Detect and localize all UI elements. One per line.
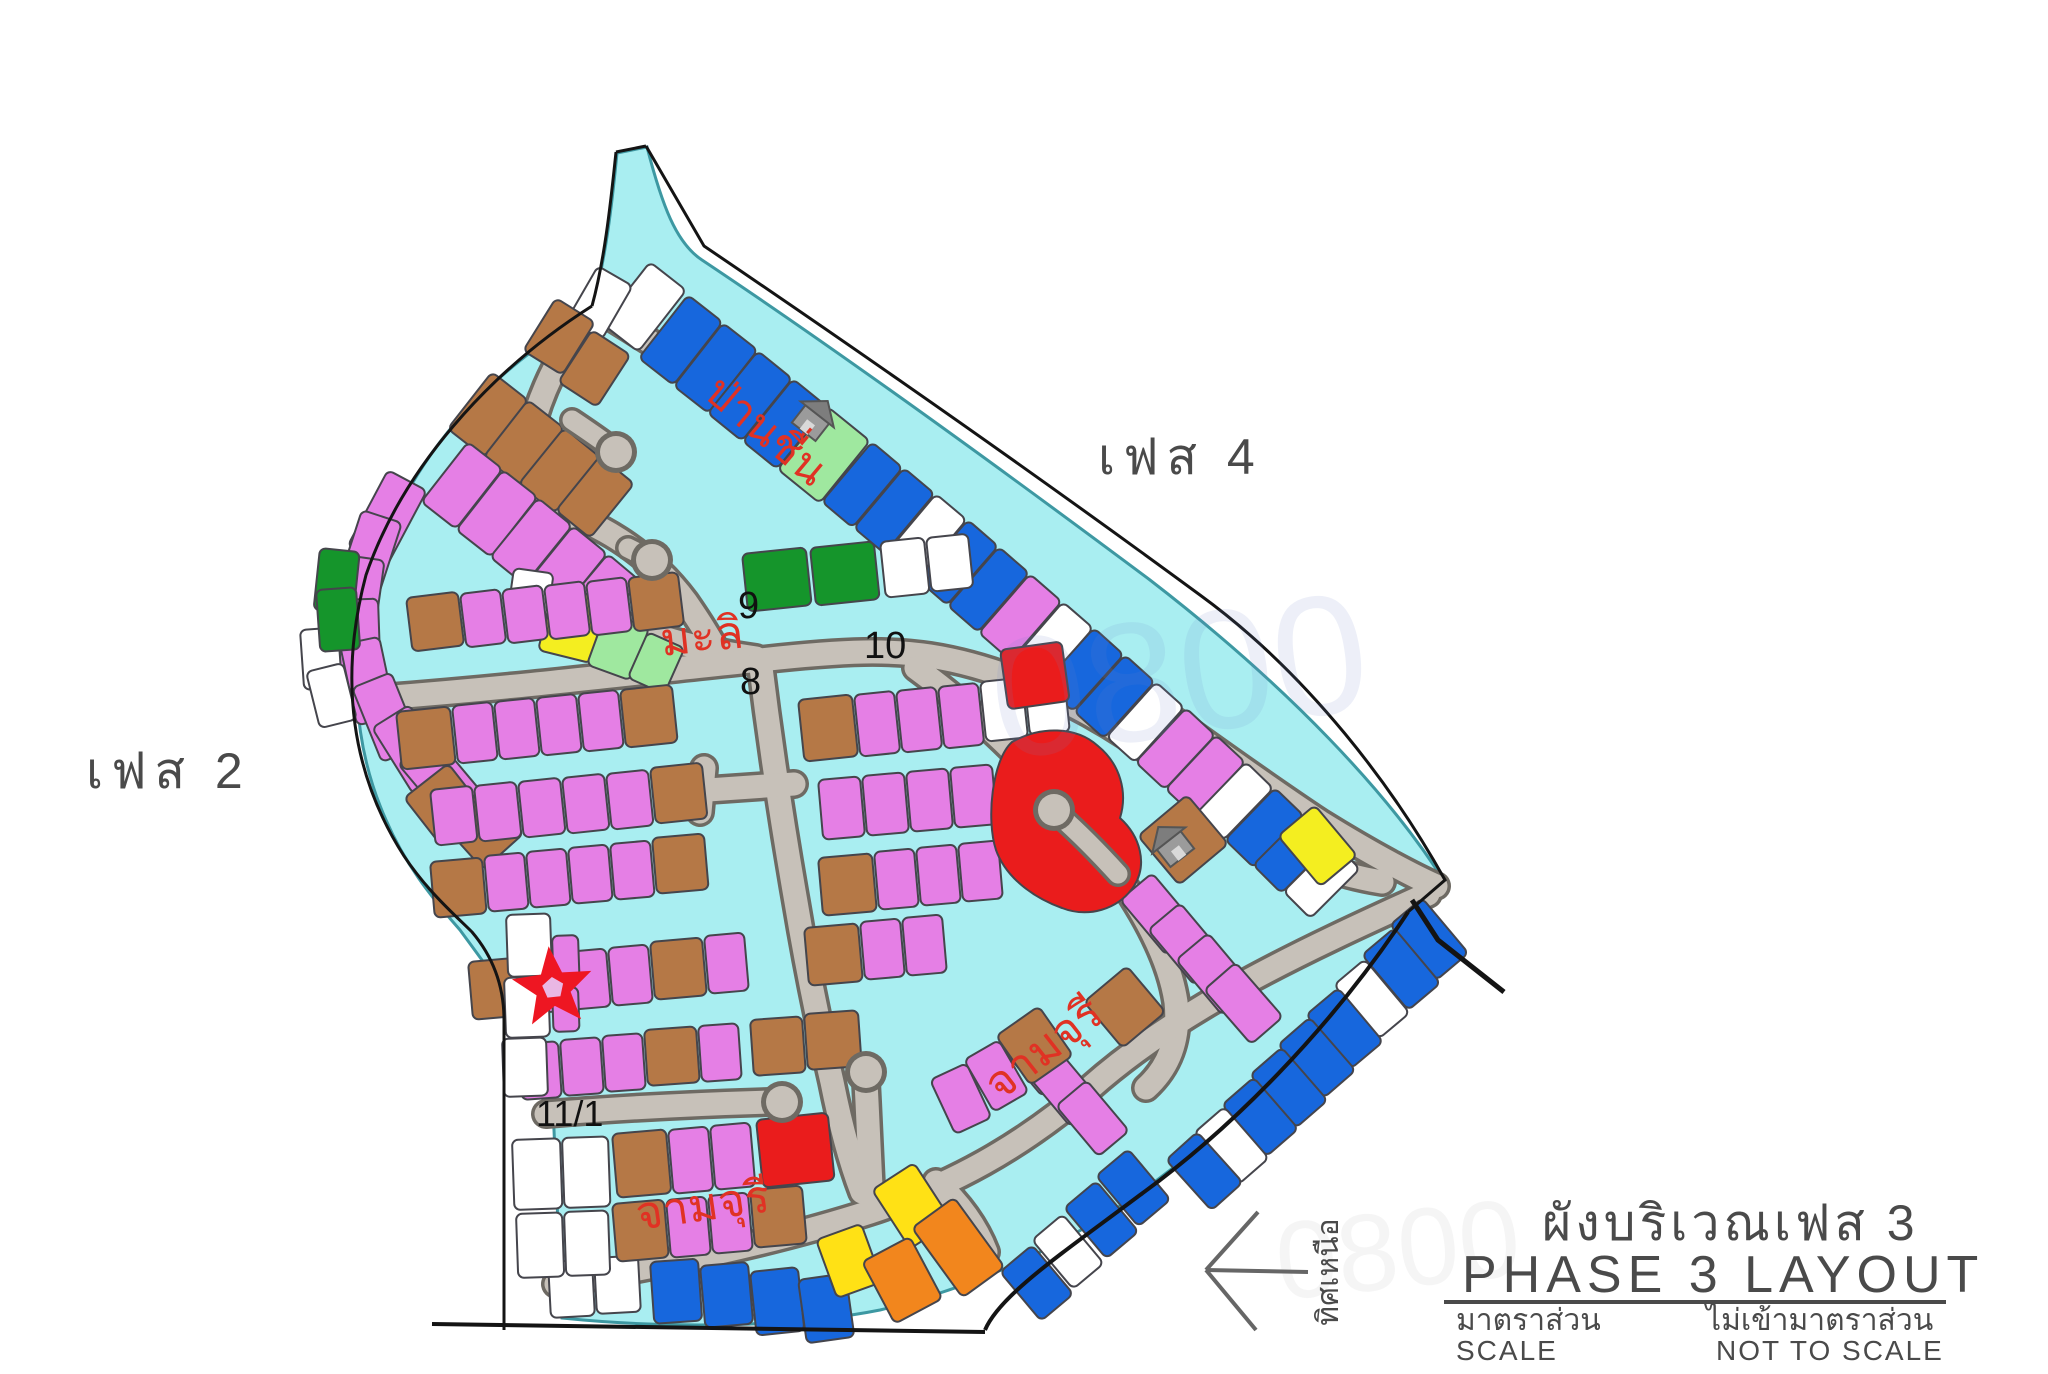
lot (704, 933, 749, 994)
junction-number-8: 8 (740, 661, 761, 703)
junction-number-9: 9 (738, 585, 759, 627)
lot (798, 694, 858, 761)
lot (562, 774, 610, 834)
lot (810, 541, 880, 605)
lot (502, 1037, 548, 1097)
lot (950, 764, 997, 827)
lot (650, 763, 708, 824)
lot (862, 772, 909, 835)
lot (854, 691, 900, 757)
lot (606, 770, 654, 830)
lot (700, 1262, 753, 1328)
lot (406, 592, 464, 652)
junction-number-10: 10 (864, 625, 906, 667)
lot (896, 687, 942, 753)
north-label: ทิศเหนือ (1312, 1218, 1345, 1325)
lot (430, 786, 478, 846)
lot (608, 945, 653, 1006)
culdesac-bulb (850, 1056, 882, 1088)
title-english: PHASE 3 LAYOUT (1462, 1246, 1984, 1304)
lot (586, 577, 632, 635)
culdesac-bulb (636, 544, 668, 576)
lot (544, 581, 590, 639)
lot (484, 853, 529, 912)
lot (880, 537, 930, 597)
road (866, 1082, 872, 1208)
lot (430, 857, 487, 917)
lot (494, 698, 540, 760)
lot (860, 919, 905, 980)
lot (516, 1212, 564, 1278)
lot (756, 1112, 835, 1187)
phase2-label: เฟส 2 (86, 743, 251, 799)
lot (698, 1023, 742, 1082)
lot (874, 849, 919, 910)
lot (644, 1026, 700, 1085)
lot (804, 923, 863, 985)
road (708, 784, 794, 790)
scale-label-english: SCALE (1456, 1335, 1558, 1366)
lot (578, 690, 624, 752)
not-to-scale-thai: ไม่เข้ามาตราส่วน (1704, 1302, 1933, 1337)
lot (602, 1033, 646, 1092)
lot (652, 833, 709, 893)
culdesac-bulb (1038, 794, 1070, 826)
lot (650, 937, 707, 999)
phase4-label: เฟส 4 (1098, 429, 1263, 485)
lot (926, 534, 973, 592)
culdesac-bulb (600, 436, 632, 468)
lot (452, 702, 498, 764)
lot (526, 849, 571, 908)
lot (460, 589, 506, 647)
lot (610, 841, 655, 900)
lot (518, 778, 566, 838)
not-to-scale-english: NOT TO SCALE (1716, 1335, 1944, 1366)
phase3-layout-map: 0800 0800 เฟส 4 เฟส 2 ป่านชื่น มะลิ จามจ… (0, 0, 2048, 1374)
lot (568, 845, 613, 904)
lot (916, 845, 961, 906)
lot (564, 1210, 610, 1275)
lot (560, 1037, 604, 1096)
road-number-11-1: 11/1 (536, 1093, 603, 1134)
title-block: ผังบริเวณเฟส 3 PHASE 3 LAYOUT มาตราส่วน … (1444, 1195, 1984, 1366)
lot (650, 1259, 702, 1324)
lot (536, 694, 582, 756)
lot (750, 1267, 804, 1336)
lot (818, 776, 865, 839)
lot (750, 1016, 806, 1075)
road-label-mali: มะลิ (658, 606, 746, 666)
lot (512, 1138, 562, 1210)
lot (502, 585, 548, 643)
lot (818, 853, 877, 915)
lot (474, 782, 522, 842)
lot (938, 683, 984, 749)
lot (620, 685, 678, 748)
lot (396, 706, 456, 769)
lot (906, 768, 953, 831)
lot (902, 915, 947, 976)
title-thai: ผังบริเวณเฟส 3 (1542, 1195, 1919, 1251)
culdesac-bulb (766, 1086, 798, 1118)
lot (562, 1136, 610, 1208)
scale-label-thai: มาตราส่วน (1456, 1304, 1601, 1337)
